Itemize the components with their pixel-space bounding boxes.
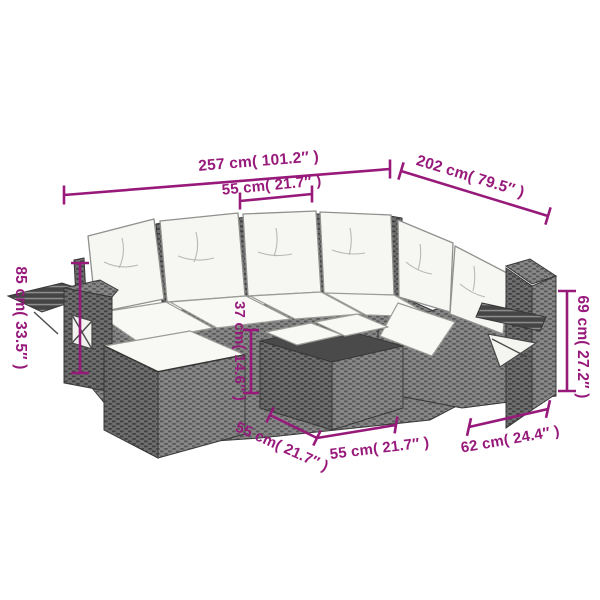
product-dimension-diagram: 257 cm( 101.2″ ) 55 cm( 21.7″ ) 202 cm( … [0,0,600,600]
back-pillow [160,213,245,302]
dimension-right-height: 69 cm( 27.2″ ) [558,291,591,399]
dimension-table-right-label: 55 cm( 21.7″ ) [329,434,430,463]
dimension-left-height-label: 85 cm( 33.5″ ) [12,266,29,369]
dimension-total-depth-label: 202 cm( 79.5″ ) [414,152,526,201]
dimension-seat-width: 55 cm( 21.7″ ) [221,172,322,209]
dimension-right-height-label: 69 cm( 27.2″ ) [574,295,591,398]
diagram-canvas: 257 cm( 101.2″ ) 55 cm( 21.7″ ) 202 cm( … [0,0,600,600]
footstool [104,331,245,458]
dimension-total-width-label: 257 cm( 101.2″ ) [198,148,320,175]
dimension-right-seat-label: 62 cm( 24.4″ ) [459,423,560,457]
back-pillow [398,220,453,312]
dimension-line [558,291,576,391]
left-tray-support [34,312,58,334]
dimension-table-height-label: 37 cm( 14.6″ ) [231,301,248,401]
dimension-total-depth: 202 cm( 79.5″ ) [398,152,550,224]
back-pillow [243,211,321,296]
